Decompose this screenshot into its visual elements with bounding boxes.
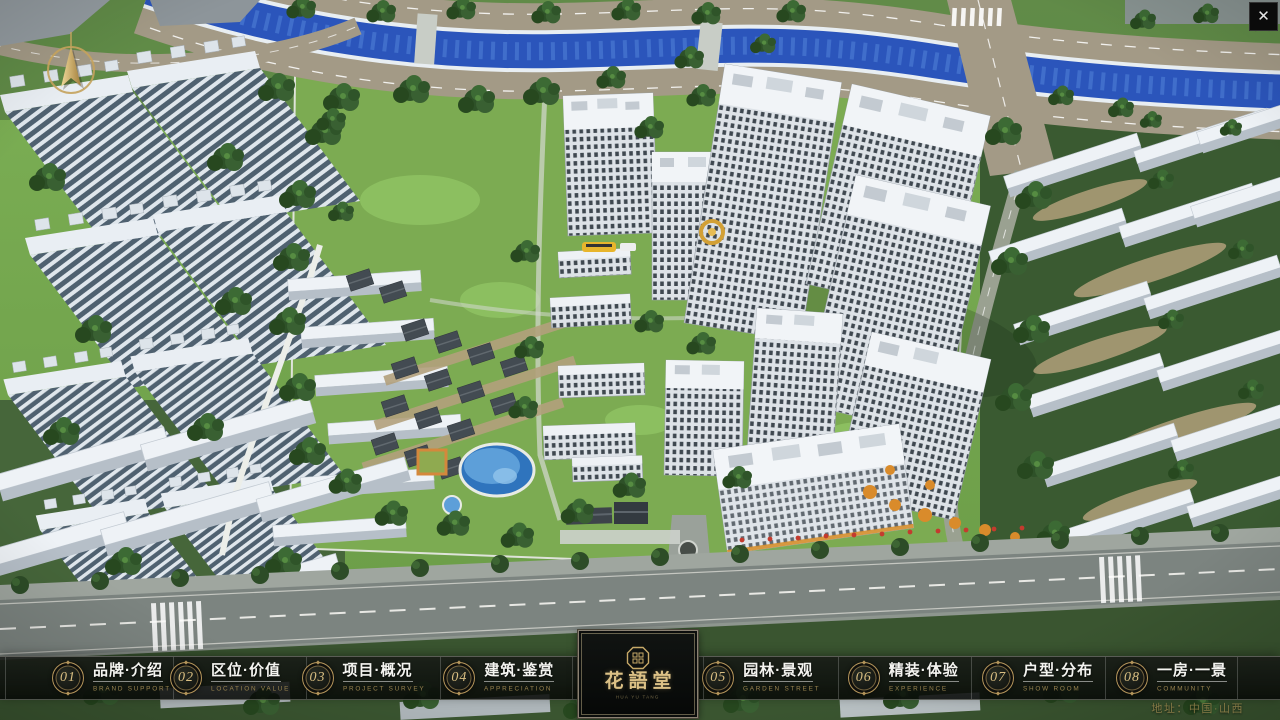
nav-number: 04 bbox=[451, 670, 467, 686]
nav-number-badge: 08 bbox=[1116, 662, 1148, 694]
brand-name: 花語堂 bbox=[599, 672, 676, 691]
nav-label-zh: 精装·体验 bbox=[889, 663, 959, 682]
nav-number: 03 bbox=[310, 670, 326, 686]
vignette bbox=[0, 0, 1280, 720]
nav-label-zh: 项目·概况 bbox=[343, 663, 413, 682]
nav-number-badge: 05 bbox=[702, 662, 734, 694]
bottom-menu-bar: 01 品牌·介绍 BRAND SUPPORT 02 区位·价值 LOCATION… bbox=[0, 656, 1280, 700]
nav-label-zh: 品牌·介绍 bbox=[93, 663, 163, 682]
nav-number: 05 bbox=[710, 670, 726, 686]
aerial-site-plan bbox=[0, 0, 1280, 720]
nav-number-badge: 02 bbox=[170, 662, 202, 694]
nav-item-landscape[interactable]: 05 园林·景观 GARDEN STREET bbox=[703, 657, 838, 699]
brand-subtitle: HUA YU TANG bbox=[616, 695, 660, 700]
nav-label-en: PROJECT SURVEY bbox=[343, 686, 425, 692]
project-address: 地址：中国·山西 bbox=[1151, 700, 1244, 716]
nav-item-project-overview[interactable]: 03 项目·概况 PROJECT SURVEY bbox=[306, 657, 440, 699]
nav-item-architecture[interactable]: 04 建筑·鉴赏 APPRECIATION bbox=[440, 657, 572, 699]
logo-slot: 花語堂 HUA YU TANG bbox=[572, 657, 703, 699]
nav-item-interior-experience[interactable]: 06 精装·体验 EXPERIENCE bbox=[838, 657, 971, 699]
nav-label-zh: 区位·价值 bbox=[211, 663, 281, 682]
nav-number-badge: 01 bbox=[52, 662, 84, 694]
nav-item-brand-intro[interactable]: 01 品牌·介绍 BRAND SUPPORT bbox=[5, 657, 173, 699]
nav-label-en: COMMUNITY bbox=[1157, 686, 1212, 692]
nav-label-en: APPRECIATION bbox=[484, 686, 552, 692]
nav-label-en: GARDEN STREET bbox=[743, 686, 820, 692]
nav-number-badge: 06 bbox=[848, 662, 880, 694]
nav-label-zh: 园林·景观 bbox=[743, 663, 813, 682]
nav-number: 06 bbox=[856, 670, 872, 686]
nav-number-badge: 03 bbox=[302, 662, 334, 694]
nav-label-zh: 建筑·鉴赏 bbox=[484, 663, 554, 682]
nav-item-location-value[interactable]: 02 区位·价值 LOCATION VALUE bbox=[173, 657, 306, 699]
nav-item-floorplan-distribution[interactable]: 07 户型·分布 SHOW ROOM bbox=[971, 657, 1105, 699]
nav-number-badge: 04 bbox=[443, 662, 475, 694]
nav-number: 01 bbox=[60, 670, 76, 686]
brand-plaque[interactable]: 花語堂 HUA YU TANG bbox=[578, 630, 698, 718]
nav-label-zh: 一房·一景 bbox=[1157, 663, 1227, 682]
nav-number: 08 bbox=[1124, 670, 1140, 686]
nav-number: 07 bbox=[990, 670, 1006, 686]
close-icon: ✕ bbox=[1257, 9, 1270, 24]
nav-item-room-view[interactable]: 08 一房·一景 COMMUNITY bbox=[1105, 657, 1237, 699]
nav-label-zh: 户型·分布 bbox=[1023, 663, 1093, 682]
nav-number-badge: 07 bbox=[982, 662, 1014, 694]
brand-seal-icon bbox=[626, 646, 650, 670]
sales-presentation-screen: ✕ 01 品牌·介绍 BRAND SUPPORT 02 区位·价值 LOCATI… bbox=[0, 0, 1280, 720]
close-button[interactable]: ✕ bbox=[1249, 2, 1278, 31]
nav-label-en: BRAND SUPPORT bbox=[93, 686, 171, 692]
nav-label-en: SHOW ROOM bbox=[1023, 686, 1080, 692]
nav-label-en: LOCATION VALUE bbox=[211, 686, 290, 692]
nav-label-en: EXPERIENCE bbox=[889, 686, 948, 692]
nav-number: 02 bbox=[178, 670, 194, 686]
nav-spacer bbox=[1237, 657, 1280, 699]
